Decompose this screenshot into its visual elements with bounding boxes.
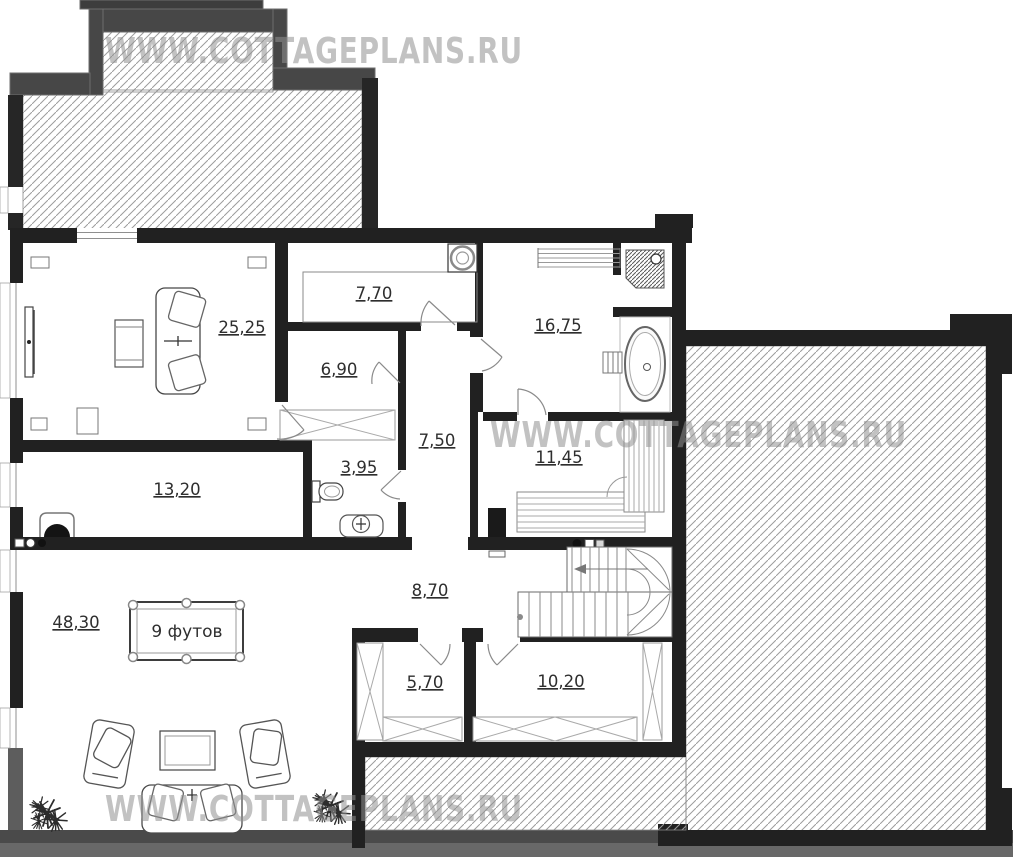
porch-left-wall-lower [8,213,23,230]
stove-door-icon [489,551,505,557]
wardrobe-icon [473,717,637,741]
garage-terrace [658,314,1012,846]
billiard-table-label: 9 футов [151,622,222,642]
room-area-label-wc: 3,95 [341,458,378,477]
sink-icon [340,515,383,537]
room-area-label-closet-large: 10,20 [537,672,584,691]
room-area-label-billiard-room: 48,30 [52,613,99,632]
porch-left-wall-upper [8,95,23,187]
watermark-top: WWW.COTTAGEPLANS.RU [105,31,523,72]
sauna-stove-icon [488,508,506,537]
porch-hatch-main [23,90,362,230]
porch-right-wall [362,78,378,230]
wardrobe-icon [643,643,662,740]
floor-plan-drawing: 25,25 7,70 16,75 6,90 7,50 3,95 11,45 13… [0,0,1013,857]
room-area-label-living-room: 25,25 [218,318,265,337]
room-area-label-bathroom: 16,75 [534,316,581,335]
room-area-label-corridor: 7,50 [419,431,456,450]
side-table-icon [160,731,215,770]
shower-icon [626,250,664,288]
watermark-bottom: WWW.COTTAGEPLANS.RU [105,789,523,830]
room-area-label-kitchen: 7,70 [356,284,393,303]
sofa-icon [156,288,207,394]
floor-plan-page: 25,25 7,70 16,75 6,90 7,50 3,95 11,45 13… [0,0,1013,857]
porch-window-sill [0,187,8,213]
room-area-label-hallway: 6,90 [321,360,358,379]
bathtub-icon [625,327,665,401]
tv-icon [25,307,34,377]
washing-machine-icon [448,244,477,272]
wardrobe-icon [383,717,462,741]
toilet-icon [312,481,343,502]
watermark-middle: WWW.COTTAGEPLANS.RU [490,415,907,456]
wardrobe-icon [357,643,383,740]
room-area-label-hall: 8,70 [412,581,449,600]
step-ladder-icon [603,352,622,373]
room-area-label-study: 13,20 [153,480,200,499]
coffee-table-icon [115,320,143,367]
room-area-label-closet-small: 5,70 [407,673,444,692]
